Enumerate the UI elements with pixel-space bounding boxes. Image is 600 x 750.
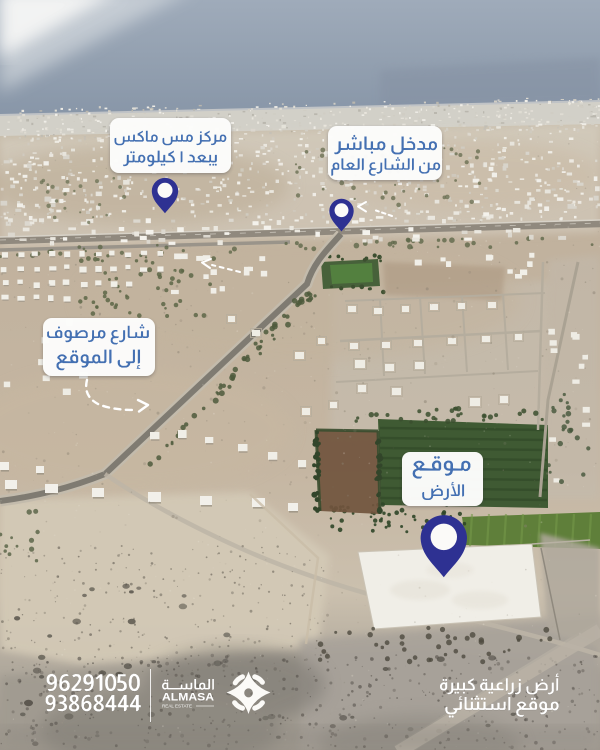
- svg-text:ALMASA: ALMASA: [162, 692, 214, 704]
- svg-text:REAL ESTATE: REAL ESTATE: [162, 704, 192, 709]
